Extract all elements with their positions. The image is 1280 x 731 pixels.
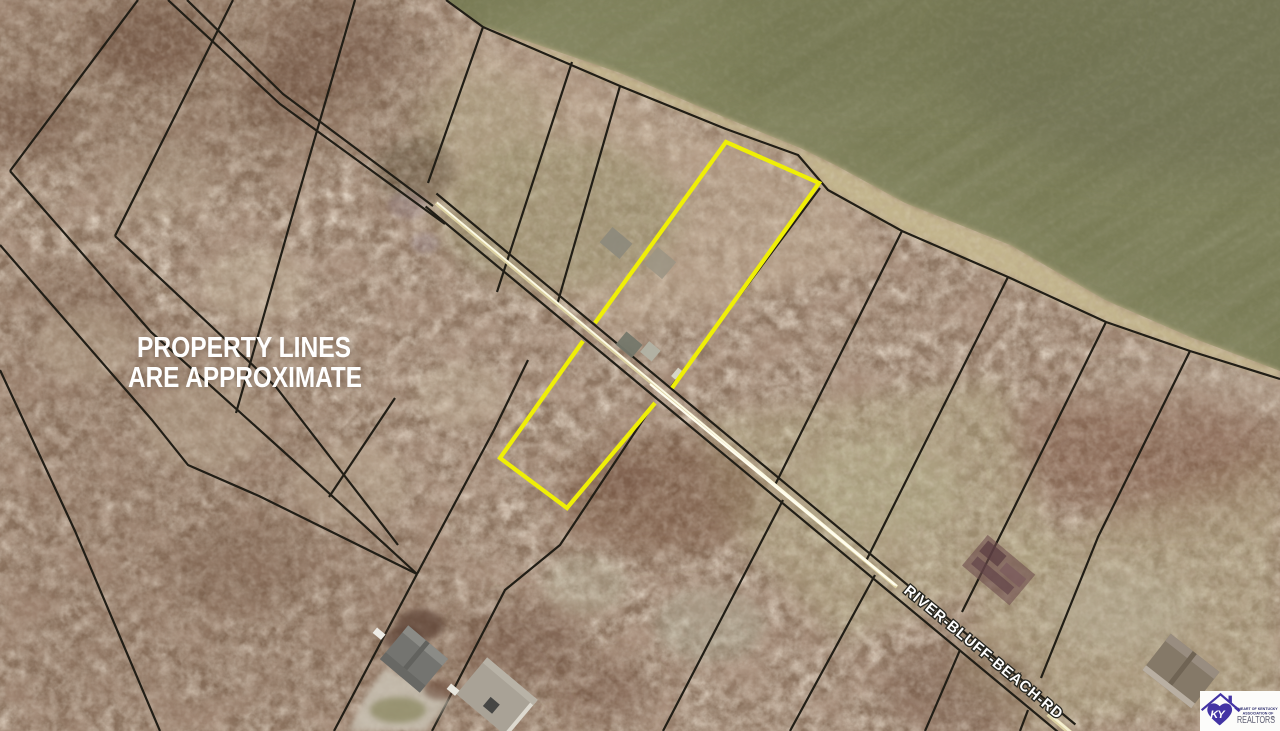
svg-text:REALTORS: REALTORS <box>1237 714 1275 726</box>
svg-text:PROPERTY LINES: PROPERTY LINES <box>137 332 351 364</box>
svg-text:ARE APPROXIMATE: ARE APPROXIMATE <box>128 362 362 394</box>
svg-text:HEART OF KENTUCKY: HEART OF KENTUCKY <box>1238 707 1278 711</box>
